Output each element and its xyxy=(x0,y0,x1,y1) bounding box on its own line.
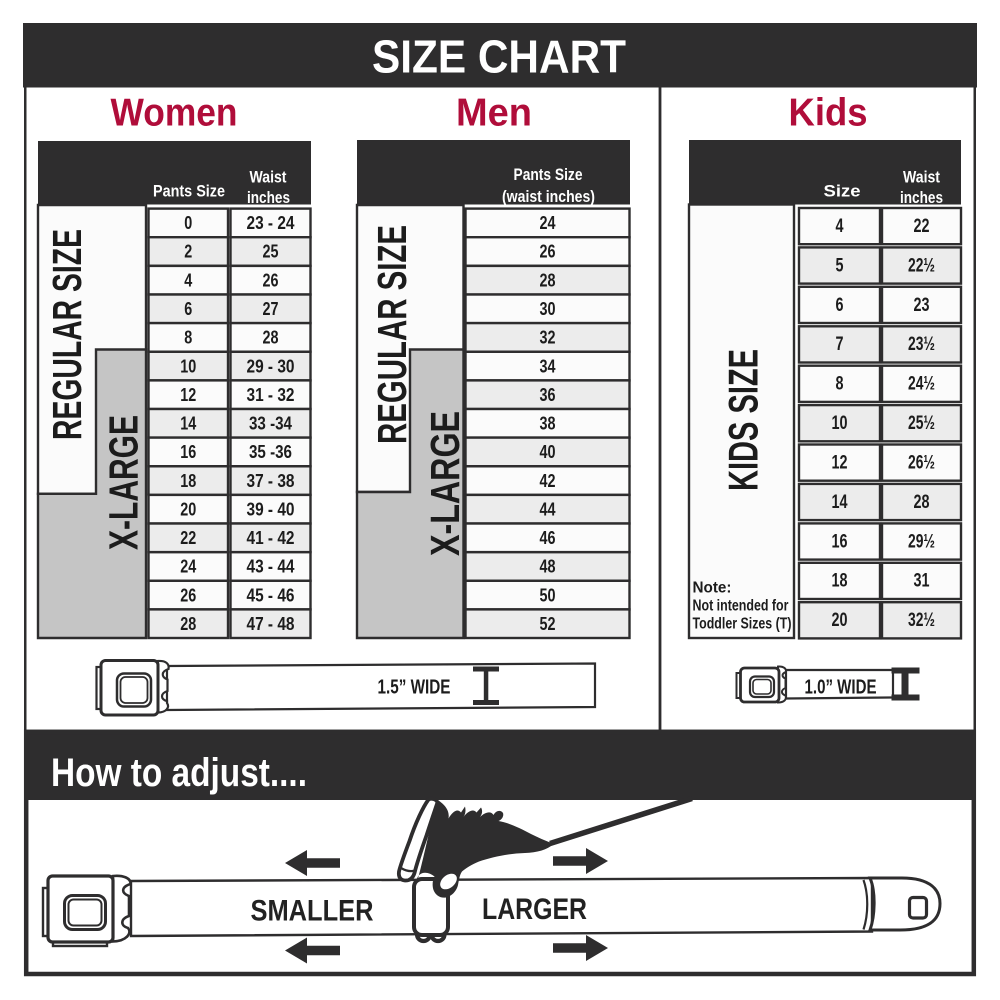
svg-text:(waist inches): (waist inches) xyxy=(502,188,595,206)
svg-text:2: 2 xyxy=(184,242,192,262)
svg-text:7: 7 xyxy=(836,333,844,355)
svg-text:30: 30 xyxy=(540,299,556,319)
svg-text:24½: 24½ xyxy=(908,373,935,395)
svg-text:REGULAR SIZE: REGULAR SIZE xyxy=(44,229,90,440)
svg-text:25½: 25½ xyxy=(908,412,935,434)
svg-text:35 -36: 35 -36 xyxy=(249,442,292,462)
svg-text:44: 44 xyxy=(540,499,557,519)
svg-text:14: 14 xyxy=(180,414,197,434)
svg-text:18: 18 xyxy=(180,471,196,491)
svg-text:43 - 44: 43 - 44 xyxy=(247,557,296,577)
svg-text:47 - 48: 47 - 48 xyxy=(247,614,295,634)
svg-text:28: 28 xyxy=(914,491,930,513)
svg-text:REGULAR SIZE: REGULAR SIZE xyxy=(369,225,415,444)
svg-text:LARGER: LARGER xyxy=(482,893,587,926)
svg-text:How to adjust....: How to adjust.... xyxy=(51,751,307,795)
svg-text:31: 31 xyxy=(914,570,930,592)
svg-text:28: 28 xyxy=(540,270,556,290)
svg-text:X-LARGE: X-LARGE xyxy=(101,415,147,550)
svg-text:6: 6 xyxy=(184,299,192,319)
svg-text:1.0” WIDE: 1.0” WIDE xyxy=(805,676,877,699)
svg-text:45 - 46: 45 - 46 xyxy=(247,585,295,605)
svg-text:Note:: Note: xyxy=(693,580,732,597)
svg-text:14: 14 xyxy=(832,491,848,513)
svg-text:26: 26 xyxy=(263,270,279,290)
svg-text:8: 8 xyxy=(184,328,192,348)
svg-text:inches: inches xyxy=(247,189,290,207)
svg-text:25: 25 xyxy=(263,242,279,262)
svg-text:36: 36 xyxy=(540,385,556,405)
svg-text:Size: Size xyxy=(824,183,861,201)
svg-text:34: 34 xyxy=(540,356,557,376)
svg-text:42: 42 xyxy=(540,471,556,491)
svg-text:38: 38 xyxy=(540,414,556,434)
svg-text:24: 24 xyxy=(540,213,557,233)
svg-text:10: 10 xyxy=(180,356,196,376)
svg-text:48: 48 xyxy=(540,557,556,577)
svg-text:Waist: Waist xyxy=(250,169,287,187)
svg-text:28: 28 xyxy=(180,614,196,634)
svg-text:27: 27 xyxy=(263,299,279,319)
svg-text:0: 0 xyxy=(184,213,192,233)
svg-text:39 - 40: 39 - 40 xyxy=(247,499,295,519)
svg-text:23: 23 xyxy=(914,294,930,316)
svg-text:Women: Women xyxy=(111,92,238,135)
svg-text:24: 24 xyxy=(180,557,197,577)
svg-text:Pants Size: Pants Size xyxy=(153,183,225,201)
svg-text:18: 18 xyxy=(832,570,848,592)
svg-text:22: 22 xyxy=(180,528,196,548)
svg-text:20: 20 xyxy=(180,499,196,519)
svg-text:29½: 29½ xyxy=(908,530,935,552)
svg-text:6: 6 xyxy=(836,294,844,316)
svg-text:X-LARGE: X-LARGE xyxy=(422,411,468,556)
svg-text:16: 16 xyxy=(832,530,848,552)
svg-text:SIZE CHART: SIZE CHART xyxy=(372,31,626,83)
svg-text:52: 52 xyxy=(540,614,556,634)
svg-text:50: 50 xyxy=(540,585,556,605)
svg-text:26: 26 xyxy=(180,585,196,605)
svg-text:29 - 30: 29 - 30 xyxy=(247,356,295,376)
svg-text:SMALLER: SMALLER xyxy=(251,895,374,928)
svg-text:10: 10 xyxy=(832,412,848,434)
svg-text:26½: 26½ xyxy=(908,451,935,473)
svg-text:41 - 42: 41 - 42 xyxy=(247,528,295,548)
svg-text:33 -34: 33 -34 xyxy=(249,414,293,434)
svg-text:4: 4 xyxy=(836,215,844,237)
svg-text:26: 26 xyxy=(540,242,556,262)
svg-text:40: 40 xyxy=(540,442,556,462)
svg-text:inches: inches xyxy=(900,189,943,207)
svg-text:22½: 22½ xyxy=(908,254,935,276)
svg-text:8: 8 xyxy=(836,373,844,395)
svg-text:32½: 32½ xyxy=(908,609,935,631)
svg-text:KIDS SIZE: KIDS SIZE xyxy=(720,349,767,491)
svg-text:Not intended for: Not intended for xyxy=(693,598,789,615)
svg-text:37 - 38: 37 - 38 xyxy=(247,471,295,491)
svg-text:5: 5 xyxy=(836,254,844,276)
svg-text:23 - 24: 23 - 24 xyxy=(247,213,296,233)
svg-text:Kids: Kids xyxy=(789,92,868,135)
svg-text:28: 28 xyxy=(263,328,279,348)
svg-text:Toddler Sizes (T): Toddler Sizes (T) xyxy=(693,616,792,633)
svg-text:4: 4 xyxy=(184,270,193,290)
svg-text:1.5” WIDE: 1.5” WIDE xyxy=(378,676,451,699)
svg-text:23½: 23½ xyxy=(908,333,935,355)
svg-text:12: 12 xyxy=(180,385,196,405)
svg-text:16: 16 xyxy=(180,442,196,462)
svg-text:20: 20 xyxy=(832,609,848,631)
svg-text:Waist: Waist xyxy=(903,169,940,187)
svg-text:Men: Men xyxy=(456,92,532,135)
svg-text:12: 12 xyxy=(832,451,848,473)
svg-text:31 - 32: 31 - 32 xyxy=(247,385,295,405)
svg-text:46: 46 xyxy=(540,528,556,548)
svg-text:Pants Size: Pants Size xyxy=(514,166,583,184)
svg-text:32: 32 xyxy=(540,328,556,348)
svg-text:22: 22 xyxy=(914,215,930,237)
